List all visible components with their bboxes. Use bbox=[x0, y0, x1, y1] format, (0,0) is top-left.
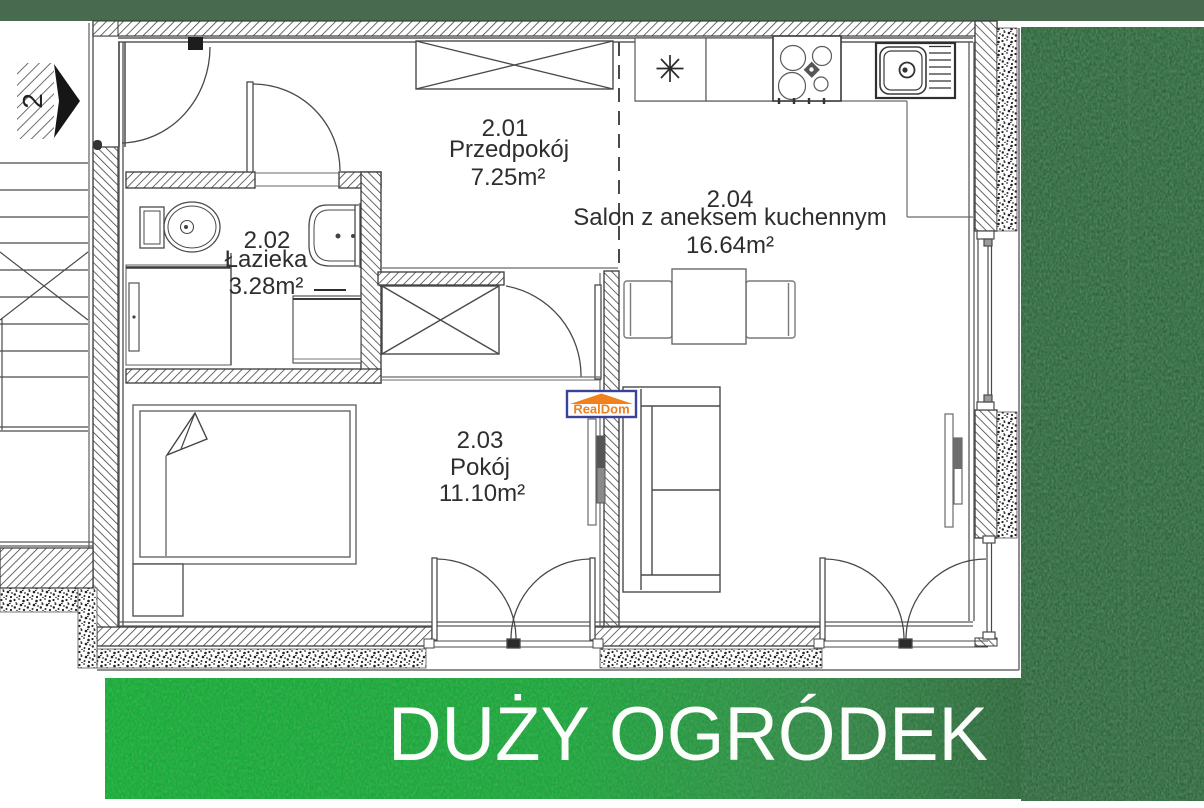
svg-text:2: 2 bbox=[17, 93, 48, 109]
svg-text:Przedpokój: Przedpokój bbox=[449, 136, 569, 163]
svg-text:2.03: 2.03 bbox=[457, 427, 504, 454]
svg-text:RealDom: RealDom bbox=[573, 402, 629, 417]
svg-text:DUŻY OGRÓDEK: DUŻY OGRÓDEK bbox=[388, 692, 988, 777]
svg-text:Salon z aneksem kuchennym: Salon z aneksem kuchennym bbox=[573, 204, 887, 231]
svg-text:3.28m²: 3.28m² bbox=[229, 273, 304, 300]
svg-text:7.25m²: 7.25m² bbox=[471, 164, 546, 191]
svg-text:16.64m²: 16.64m² bbox=[686, 232, 774, 259]
svg-text:Łazieka: Łazieka bbox=[225, 246, 308, 273]
svg-text:Pokój: Pokój bbox=[450, 454, 510, 481]
svg-text:11.10m²: 11.10m² bbox=[439, 480, 525, 507]
